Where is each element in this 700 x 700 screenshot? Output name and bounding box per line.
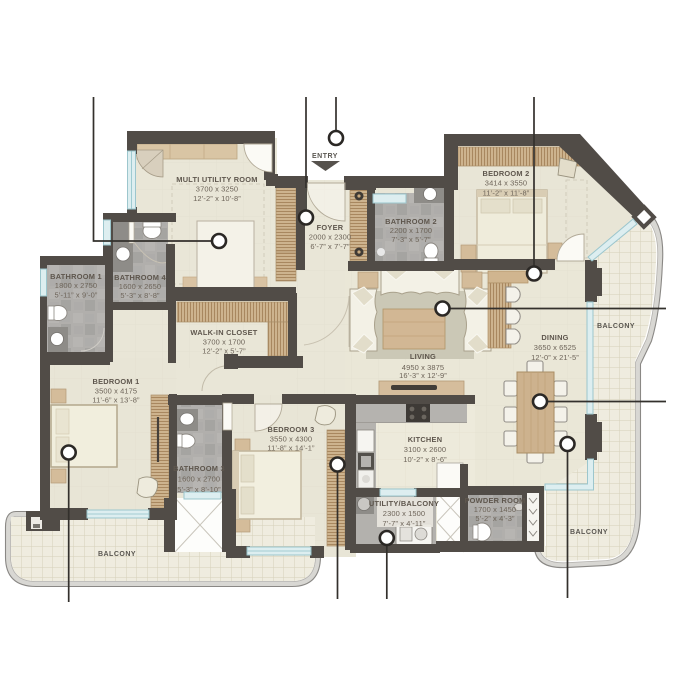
svg-text:3650 x 6525: 3650 x 6525 [534, 343, 576, 352]
svg-text:3700 x 3250: 3700 x 3250 [196, 185, 238, 194]
svg-text:3100 x 2600: 3100 x 2600 [404, 445, 446, 454]
svg-text:BATHROOM 1: BATHROOM 1 [50, 272, 102, 281]
svg-text:16’-3” x 12’-9”: 16’-3” x 12’-9” [399, 371, 447, 380]
svg-text:2200 x 1700: 2200 x 1700 [390, 226, 432, 235]
svg-text:3500 x 4175: 3500 x 4175 [95, 387, 137, 396]
svg-text:2000 x 2300: 2000 x 2300 [309, 233, 351, 242]
svg-text:11’-8” x 14’-1”: 11’-8” x 14’-1” [267, 444, 315, 453]
svg-text:BATHROOM 4: BATHROOM 4 [114, 273, 166, 282]
svg-text:BEDROOM 1: BEDROOM 1 [92, 377, 139, 386]
svg-text:3414 x 3550: 3414 x 3550 [485, 179, 527, 188]
svg-text:5’-3” x 8’-10”: 5’-3” x 8’-10” [177, 485, 221, 494]
svg-text:DINING: DINING [541, 333, 568, 342]
svg-text:MULTI UTILITY ROOM: MULTI UTILITY ROOM [176, 175, 257, 184]
svg-text:11’-2” x 11’-8”: 11’-2” x 11’-8” [483, 189, 530, 198]
svg-text:1700 x 1450: 1700 x 1450 [474, 505, 516, 514]
svg-text:UTILITY/BALCONY: UTILITY/BALCONY [369, 499, 439, 508]
svg-text:5’-3” x 8’-8”: 5’-3” x 8’-8” [120, 291, 160, 300]
svg-text:12’-2” x 5’-7”: 12’-2” x 5’-7” [202, 347, 246, 356]
svg-text:7’-7” x 4’-11”: 7’-7” x 4’-11” [383, 519, 426, 528]
svg-text:3700 x 1700: 3700 x 1700 [203, 338, 245, 347]
svg-text:BALCONY: BALCONY [98, 551, 136, 558]
svg-text:7’-3” x 5’-7”: 7’-3” x 5’-7” [391, 235, 431, 244]
svg-text:12’-2” x 10’-8”: 12’-2” x 10’-8” [193, 194, 241, 203]
svg-text:BEDROOM 2: BEDROOM 2 [482, 169, 529, 178]
svg-text:11’-6” x 13’-8”: 11’-6” x 13’-8” [92, 396, 140, 405]
svg-text:BALCONY: BALCONY [597, 323, 635, 330]
svg-text:6’-7” x 7’-7”: 6’-7” x 7’-7” [310, 242, 350, 251]
svg-text:5’-2” x 4’-3”: 5’-2” x 4’-3” [475, 514, 515, 523]
svg-text:WALK-IN CLOSET: WALK-IN CLOSET [190, 328, 257, 337]
svg-text:1600 x 2700: 1600 x 2700 [178, 475, 220, 484]
svg-text:BALCONY: BALCONY [570, 529, 608, 536]
svg-text:BATHROOM 2: BATHROOM 2 [385, 217, 437, 226]
svg-text:BEDROOM 3: BEDROOM 3 [267, 425, 314, 434]
svg-text:3550 x 4300: 3550 x 4300 [270, 435, 312, 444]
svg-text:KITCHEN: KITCHEN [408, 435, 443, 444]
svg-text:5’-11” x 9’-0”: 5’-11” x 9’-0” [55, 291, 98, 300]
svg-text:ENTRY: ENTRY [312, 153, 338, 160]
svg-text:1800 x 2750: 1800 x 2750 [55, 281, 97, 290]
svg-text:FOYER: FOYER [317, 223, 344, 232]
svg-text:POWDER ROOM: POWDER ROOM [464, 496, 525, 505]
svg-text:BATHROOM 3: BATHROOM 3 [173, 464, 225, 473]
svg-text:LIVING: LIVING [410, 352, 436, 361]
svg-text:12’-0” x 21’-5”: 12’-0” x 21’-5” [531, 353, 579, 362]
svg-text:1600 x 2650: 1600 x 2650 [119, 282, 161, 291]
svg-text:10’-2” x 8’-6”: 10’-2” x 8’-6” [403, 455, 447, 464]
svg-text:2300 x 1500: 2300 x 1500 [383, 509, 425, 518]
